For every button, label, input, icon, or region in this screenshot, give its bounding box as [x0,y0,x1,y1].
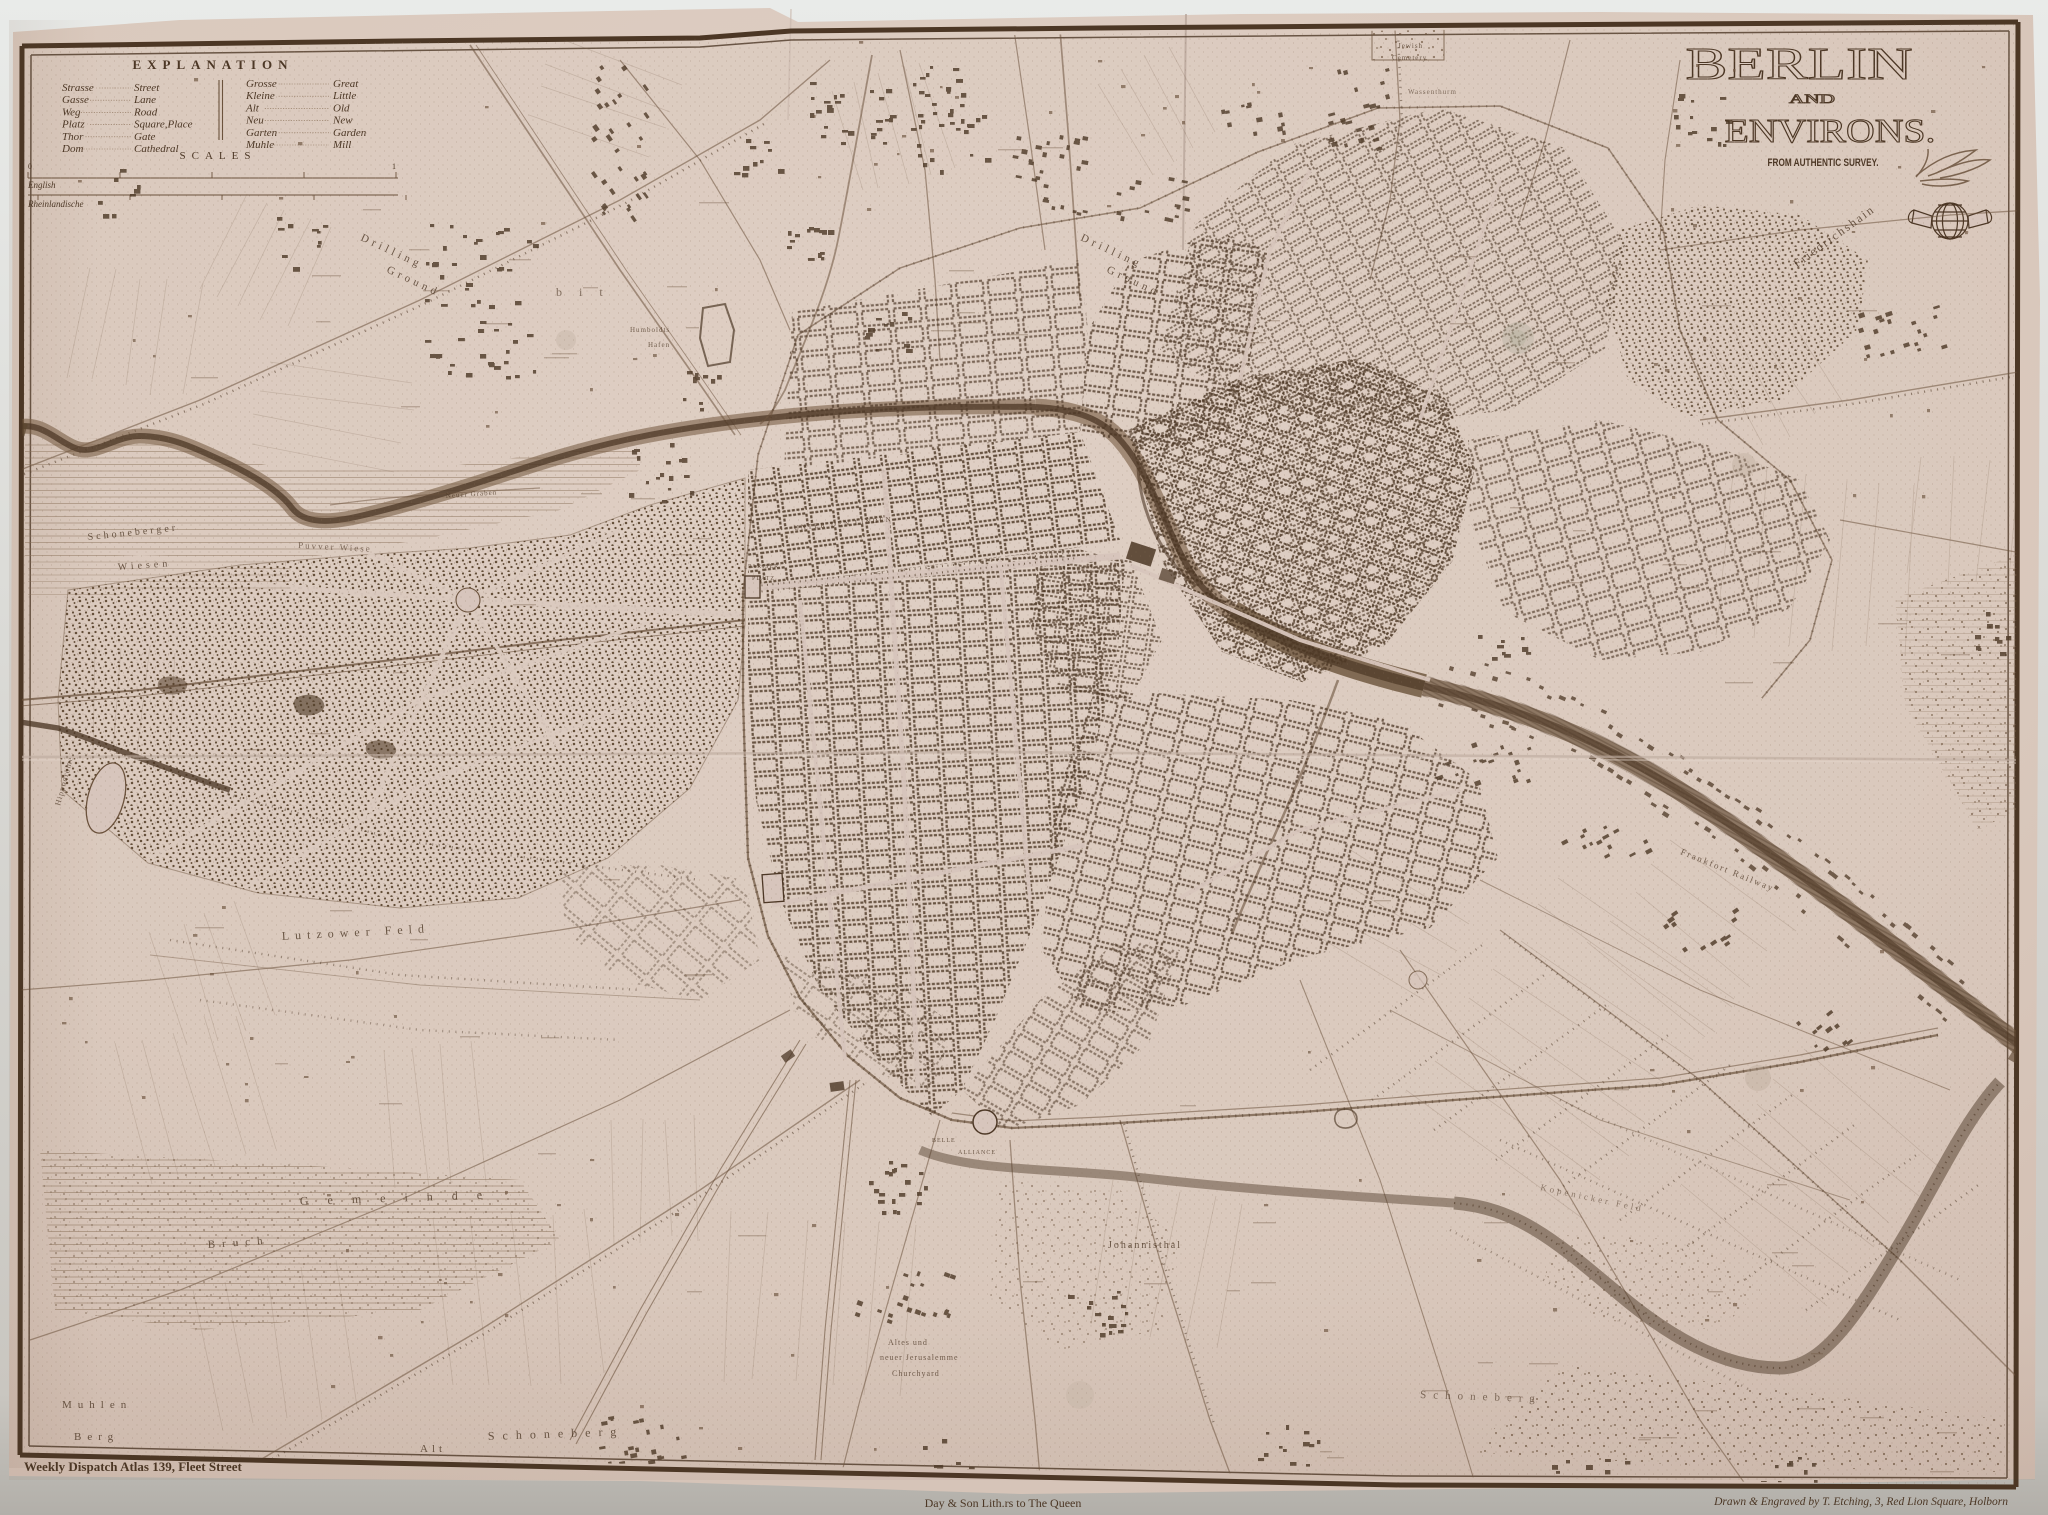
svg-text:Drawn & Engraved by T. Etching: Drawn & Engraved by T. Etching, 3, Red L… [1713,1496,2008,1508]
svg-text:Weekly Dispatch Atlas 139, Fle: Weekly Dispatch Atlas 139, Fleet Street [24,1459,243,1474]
svg-text:Day & Son Lith.rs to The Queen: Day & Son Lith.rs to The Queen [925,1496,1082,1510]
